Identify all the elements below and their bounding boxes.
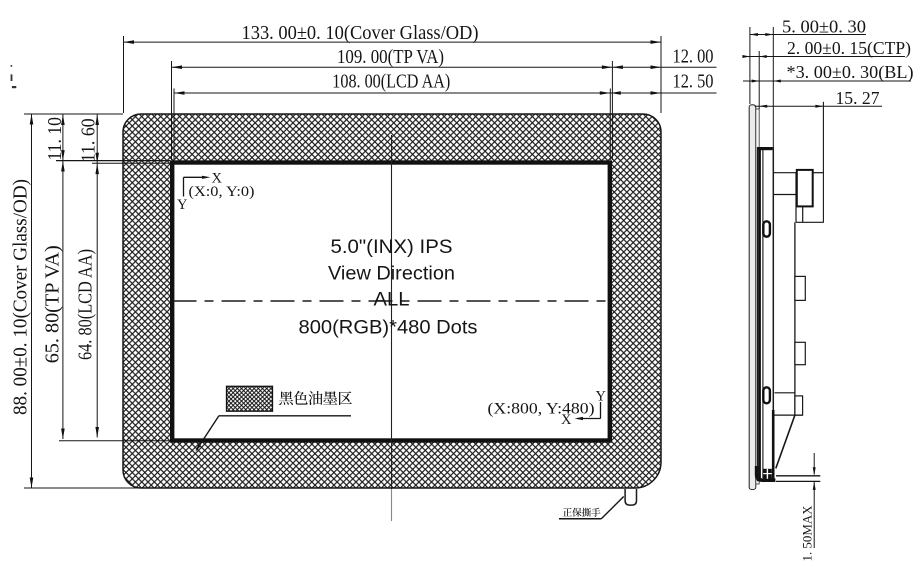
svg-text:15. 27: 15. 27: [836, 88, 880, 108]
svg-text:View Direction: View Direction: [328, 264, 455, 285]
svg-text:*3. 00±0. 30(BL): *3. 00±0. 30(BL): [787, 62, 914, 83]
svg-text:(X:0, Y:0): (X:0, Y:0): [189, 184, 255, 200]
svg-text:800(RGB)*480 Dots: 800(RGB)*480 Dots: [299, 318, 478, 339]
svg-text:133. 00±0. 10(Cover Glass/OD): 133. 00±0. 10(Cover Glass/OD): [242, 22, 479, 44]
svg-text:11. 10: 11. 10: [44, 117, 66, 161]
svg-text:109. 00(TP VA): 109. 00(TP VA): [337, 46, 444, 68]
svg-text:11. 60: 11. 60: [78, 118, 100, 162]
svg-text:12. 50: 12. 50: [673, 71, 714, 93]
svg-text:12. 00: 12. 00: [673, 46, 714, 68]
svg-text:ALL: ALL: [374, 290, 410, 311]
svg-text:Y: Y: [177, 197, 188, 213]
svg-text:5.0"(INX) IPS: 5.0"(INX) IPS: [331, 237, 453, 258]
svg-text:2. 00±0. 15(CTP): 2. 00±0. 15(CTP): [787, 38, 911, 59]
svg-text:5. 00±0. 30: 5. 00±0. 30: [782, 17, 866, 37]
svg-text:88. 00±0. 10(Cover Glass/OD): 88. 00±0. 10(Cover Glass/OD): [10, 179, 32, 415]
svg-text:65. 80(TP VA): 65. 80(TP VA): [42, 245, 64, 363]
svg-text:64. 80(LCD AA): 64. 80(LCD AA): [75, 249, 97, 360]
svg-text:1. 50MAX: 1. 50MAX: [800, 505, 815, 562]
svg-text:(X:800, Y:480): (X:800, Y:480): [488, 401, 595, 418]
svg-text:108. 00(LCD AA): 108. 00(LCD AA): [332, 71, 450, 93]
svg-text:Y: Y: [596, 388, 607, 404]
